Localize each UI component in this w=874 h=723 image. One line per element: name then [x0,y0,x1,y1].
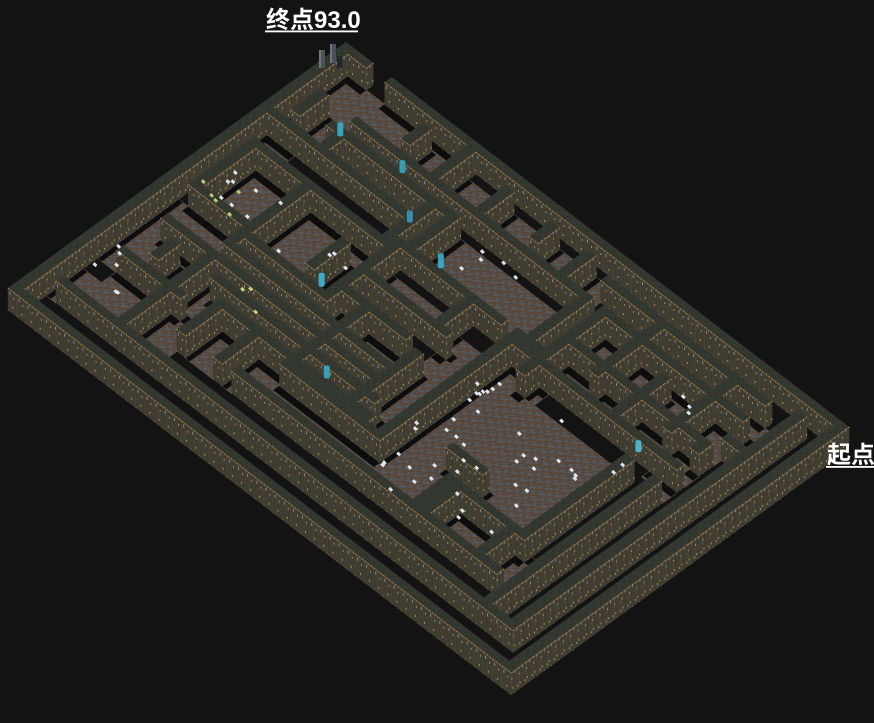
svg-text:93.0: 93.0 [314,7,361,34]
